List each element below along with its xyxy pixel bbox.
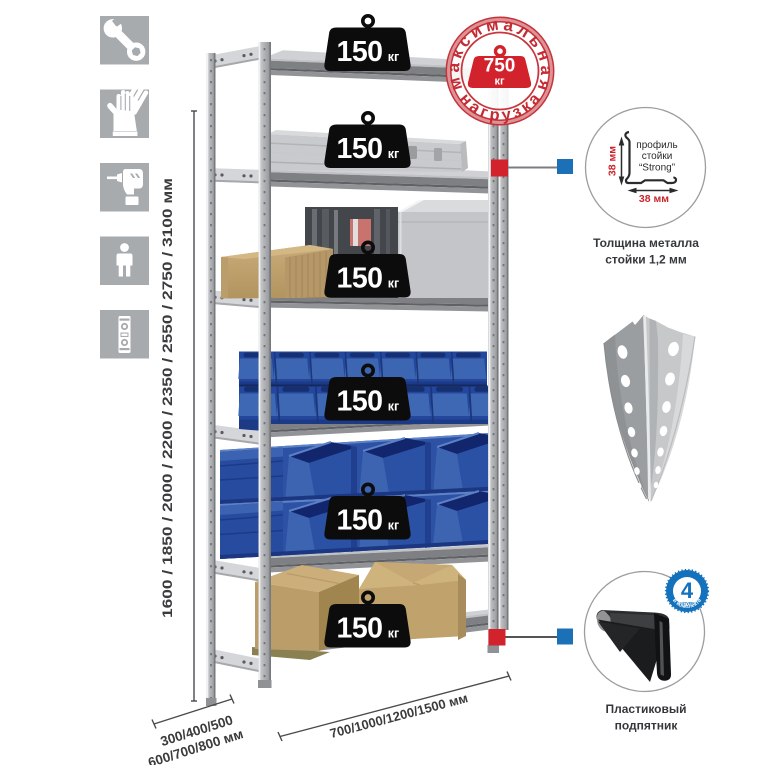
svg-text:Толщина металла: Толщина металла xyxy=(593,236,699,250)
svg-text:750: 750 xyxy=(484,56,516,77)
svg-text:Пластиковый: Пластиковый xyxy=(605,702,686,716)
svg-text:38 мм: 38 мм xyxy=(607,146,619,176)
svg-text:кг: кг xyxy=(494,76,505,88)
svg-text:4: 4 xyxy=(681,578,694,603)
svg-text:стойки: стойки xyxy=(642,151,673,162)
svg-text:подпятник: подпятник xyxy=(615,719,679,733)
svg-text:1600 / 1850 / 2000 / 2200 / 23: 1600 / 1850 / 2000 / 2200 / 2350 / 2550 … xyxy=(159,178,175,618)
svg-text:38 мм: 38 мм xyxy=(639,193,669,205)
svg-text:“Strong”: “Strong” xyxy=(639,163,675,174)
svg-text:стойки 1,2 мм: стойки 1,2 мм xyxy=(605,253,687,267)
svg-text:профиль: профиль xyxy=(636,139,677,151)
